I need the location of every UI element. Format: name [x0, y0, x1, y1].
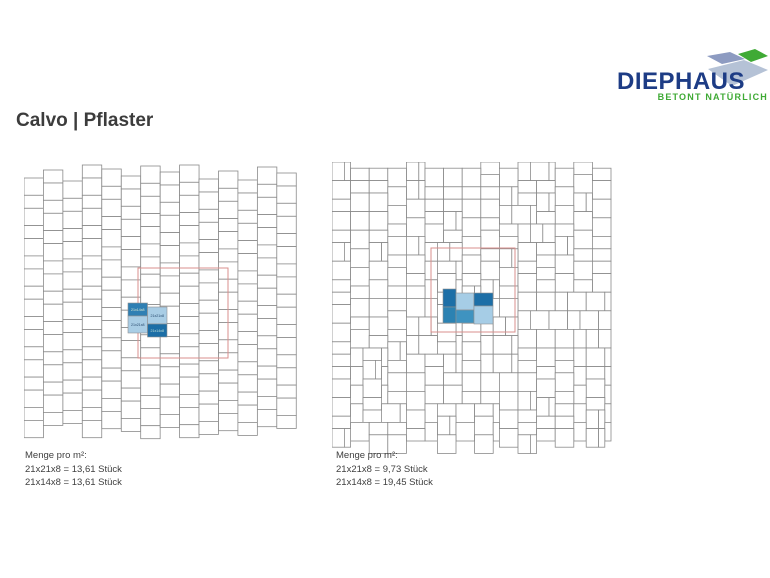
- paving-pattern-wild-bond: [332, 162, 612, 458]
- svg-text:21x21x8: 21x21x8: [131, 323, 145, 327]
- caption-quantity-line: 21x21x8 = 9,73 Stück: [336, 463, 433, 477]
- caption-quantity-line: 21x14x8 = 13,61 Stück: [25, 476, 122, 490]
- svg-text:21x21x8: 21x21x8: [150, 314, 164, 318]
- page-title: Calvo | Pflaster: [16, 110, 153, 132]
- caption-heading: Menge pro m²:: [25, 449, 122, 463]
- brand-tagline: BETONT NATÜRLICH: [600, 92, 768, 102]
- svg-text:21x14x8: 21x14x8: [150, 329, 164, 333]
- caption-left: Menge pro m²: 21x21x8 = 13,61 Stück 21x1…: [25, 449, 122, 490]
- caption-quantity-line: 21x14x8 = 19,45 Stück: [336, 476, 433, 490]
- logo-green-stone-shape: [738, 49, 768, 62]
- caption-quantity-line: 21x21x8 = 13,61 Stück: [25, 463, 122, 477]
- document-page: DIEPHAUS BETONT NATÜRLICH Calvo | Pflast…: [0, 0, 770, 578]
- svg-text:21x14x8: 21x14x8: [131, 308, 145, 312]
- paving-pattern-row-bond: 21x14x821x21x821x21x821x14x8: [24, 163, 300, 455]
- caption-heading: Menge pro m²:: [336, 449, 433, 463]
- caption-right: Menge pro m²: 21x21x8 = 9,73 Stück 21x14…: [336, 449, 433, 490]
